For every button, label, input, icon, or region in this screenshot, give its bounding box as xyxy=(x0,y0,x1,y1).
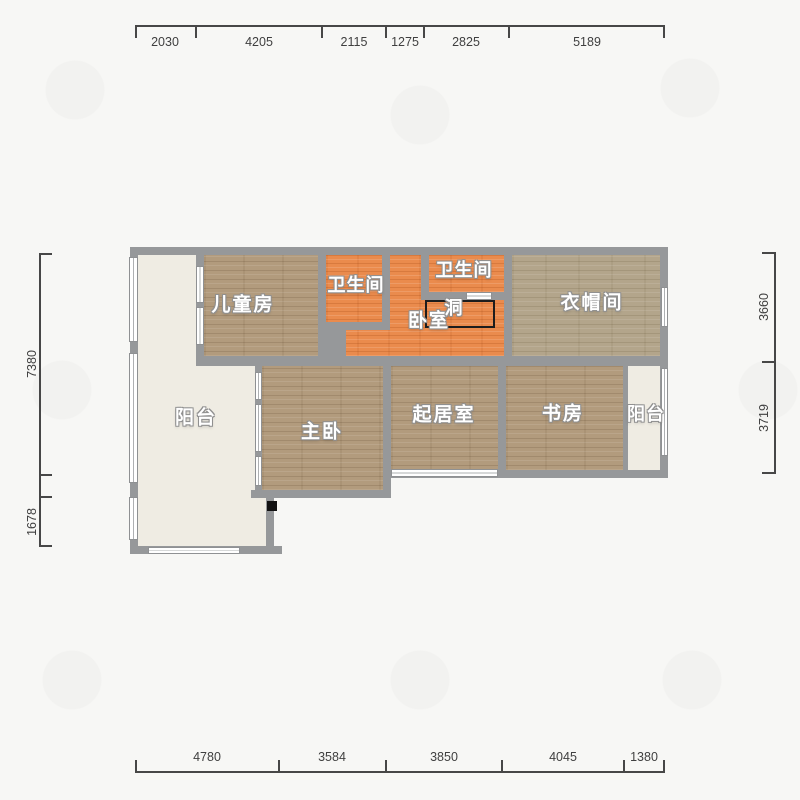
room-label-balcony-left: 阳台 xyxy=(175,403,217,430)
dimension-value: 2115 xyxy=(341,35,368,49)
dimension-value: 4045 xyxy=(549,750,577,764)
dimension-tick xyxy=(135,25,137,38)
dimension-tick xyxy=(508,25,510,38)
window-balcony-bottom xyxy=(148,547,240,554)
window-left-1 xyxy=(129,257,138,342)
room-label-hole: 洞 xyxy=(445,294,464,320)
window-living-bottom xyxy=(391,469,498,477)
dimension-line-bottom xyxy=(135,771,665,773)
dimension-value: 5189 xyxy=(573,35,601,49)
dimension-line-left xyxy=(39,253,41,547)
dimension-tick xyxy=(623,760,625,773)
dimension-tick xyxy=(501,760,503,773)
window-balcony-children-1 xyxy=(196,266,204,303)
dimension-value: 2030 xyxy=(151,35,179,49)
wall-master-bottom xyxy=(251,490,391,498)
wall-top xyxy=(130,247,668,255)
dimension-value: 1275 xyxy=(391,35,419,49)
dimension-tick xyxy=(663,25,665,38)
dimension-value: 3719 xyxy=(757,404,771,432)
window-balcony-children-2 xyxy=(196,307,204,345)
dimension-tick xyxy=(663,760,665,773)
dimension-tick xyxy=(39,496,52,498)
dimension-value: 1678 xyxy=(25,508,39,536)
wall-master-living xyxy=(383,356,391,498)
room-label-cloakroom: 衣帽间 xyxy=(560,288,623,315)
dimension-value: 3850 xyxy=(430,750,458,764)
dimension-tick xyxy=(39,545,52,547)
dimension-tick xyxy=(762,472,775,474)
wall-bathroom1-corner xyxy=(318,322,346,356)
window-master-partition-2 xyxy=(255,404,262,452)
dimension-value: 3584 xyxy=(318,750,346,764)
dimension-tick xyxy=(135,760,137,773)
dimension-value: 4205 xyxy=(245,35,273,49)
dimension-value: 7380 xyxy=(25,350,39,378)
dimension-value: 4780 xyxy=(193,750,221,764)
window-left-2 xyxy=(129,353,138,483)
column-marker xyxy=(267,501,277,511)
dimension-value: 3660 xyxy=(757,293,771,321)
dimension-tick xyxy=(321,25,323,38)
wall-cloakroom-left xyxy=(504,247,512,356)
dimension-tick xyxy=(385,25,387,38)
wall-living-study xyxy=(498,366,506,470)
dimension-value: 1380 xyxy=(630,750,658,764)
room-label-bathroom-right: 卫生间 xyxy=(436,256,493,282)
window-left-3 xyxy=(129,497,138,540)
dimension-line-top xyxy=(135,25,665,27)
window-bathroom2-bar xyxy=(466,292,492,300)
window-master-partition-1 xyxy=(255,372,262,400)
dimension-tick xyxy=(195,25,197,38)
dimension-tick xyxy=(39,474,52,476)
dimension-tick xyxy=(385,760,387,773)
dimension-tick xyxy=(762,252,775,254)
room-balcony-left-floor xyxy=(138,255,196,546)
dimension-tick xyxy=(762,361,775,363)
room-label-living-room: 起居室 xyxy=(412,400,475,427)
dimension-tick xyxy=(278,760,280,773)
window-master-partition-3 xyxy=(255,456,262,486)
wall-bathroom2-bottom xyxy=(421,292,508,300)
dimension-value: 2825 xyxy=(452,35,480,49)
wall-bathroom1-left xyxy=(318,255,326,322)
dimension-tick xyxy=(423,25,425,38)
room-label-children: 儿童房 xyxy=(211,290,274,317)
room-label-balcony-right: 阳台 xyxy=(627,400,665,426)
floor-plan-canvas: 儿童房 卫生间 卫生间 卧室 洞 衣帽间 阳台 主卧 起居室 书房 阳台 203… xyxy=(0,0,800,800)
dimension-line-right xyxy=(774,252,776,474)
room-label-master-bedroom: 主卧 xyxy=(301,417,343,444)
wall-mid-horizontal xyxy=(196,356,668,366)
room-label-study: 书房 xyxy=(542,399,584,426)
room-label-bathroom-left: 卫生间 xyxy=(328,271,385,297)
dimension-tick xyxy=(39,253,52,255)
window-cloakroom-right xyxy=(661,287,668,327)
